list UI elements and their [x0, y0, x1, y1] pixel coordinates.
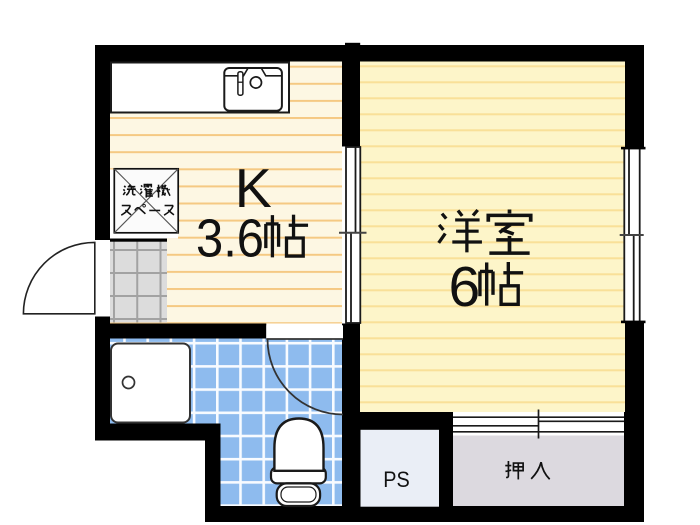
svg-text:PS: PS	[383, 467, 410, 492]
svg-text:3.6: 3.6	[196, 208, 264, 268]
svg-text:6: 6	[449, 255, 481, 319]
